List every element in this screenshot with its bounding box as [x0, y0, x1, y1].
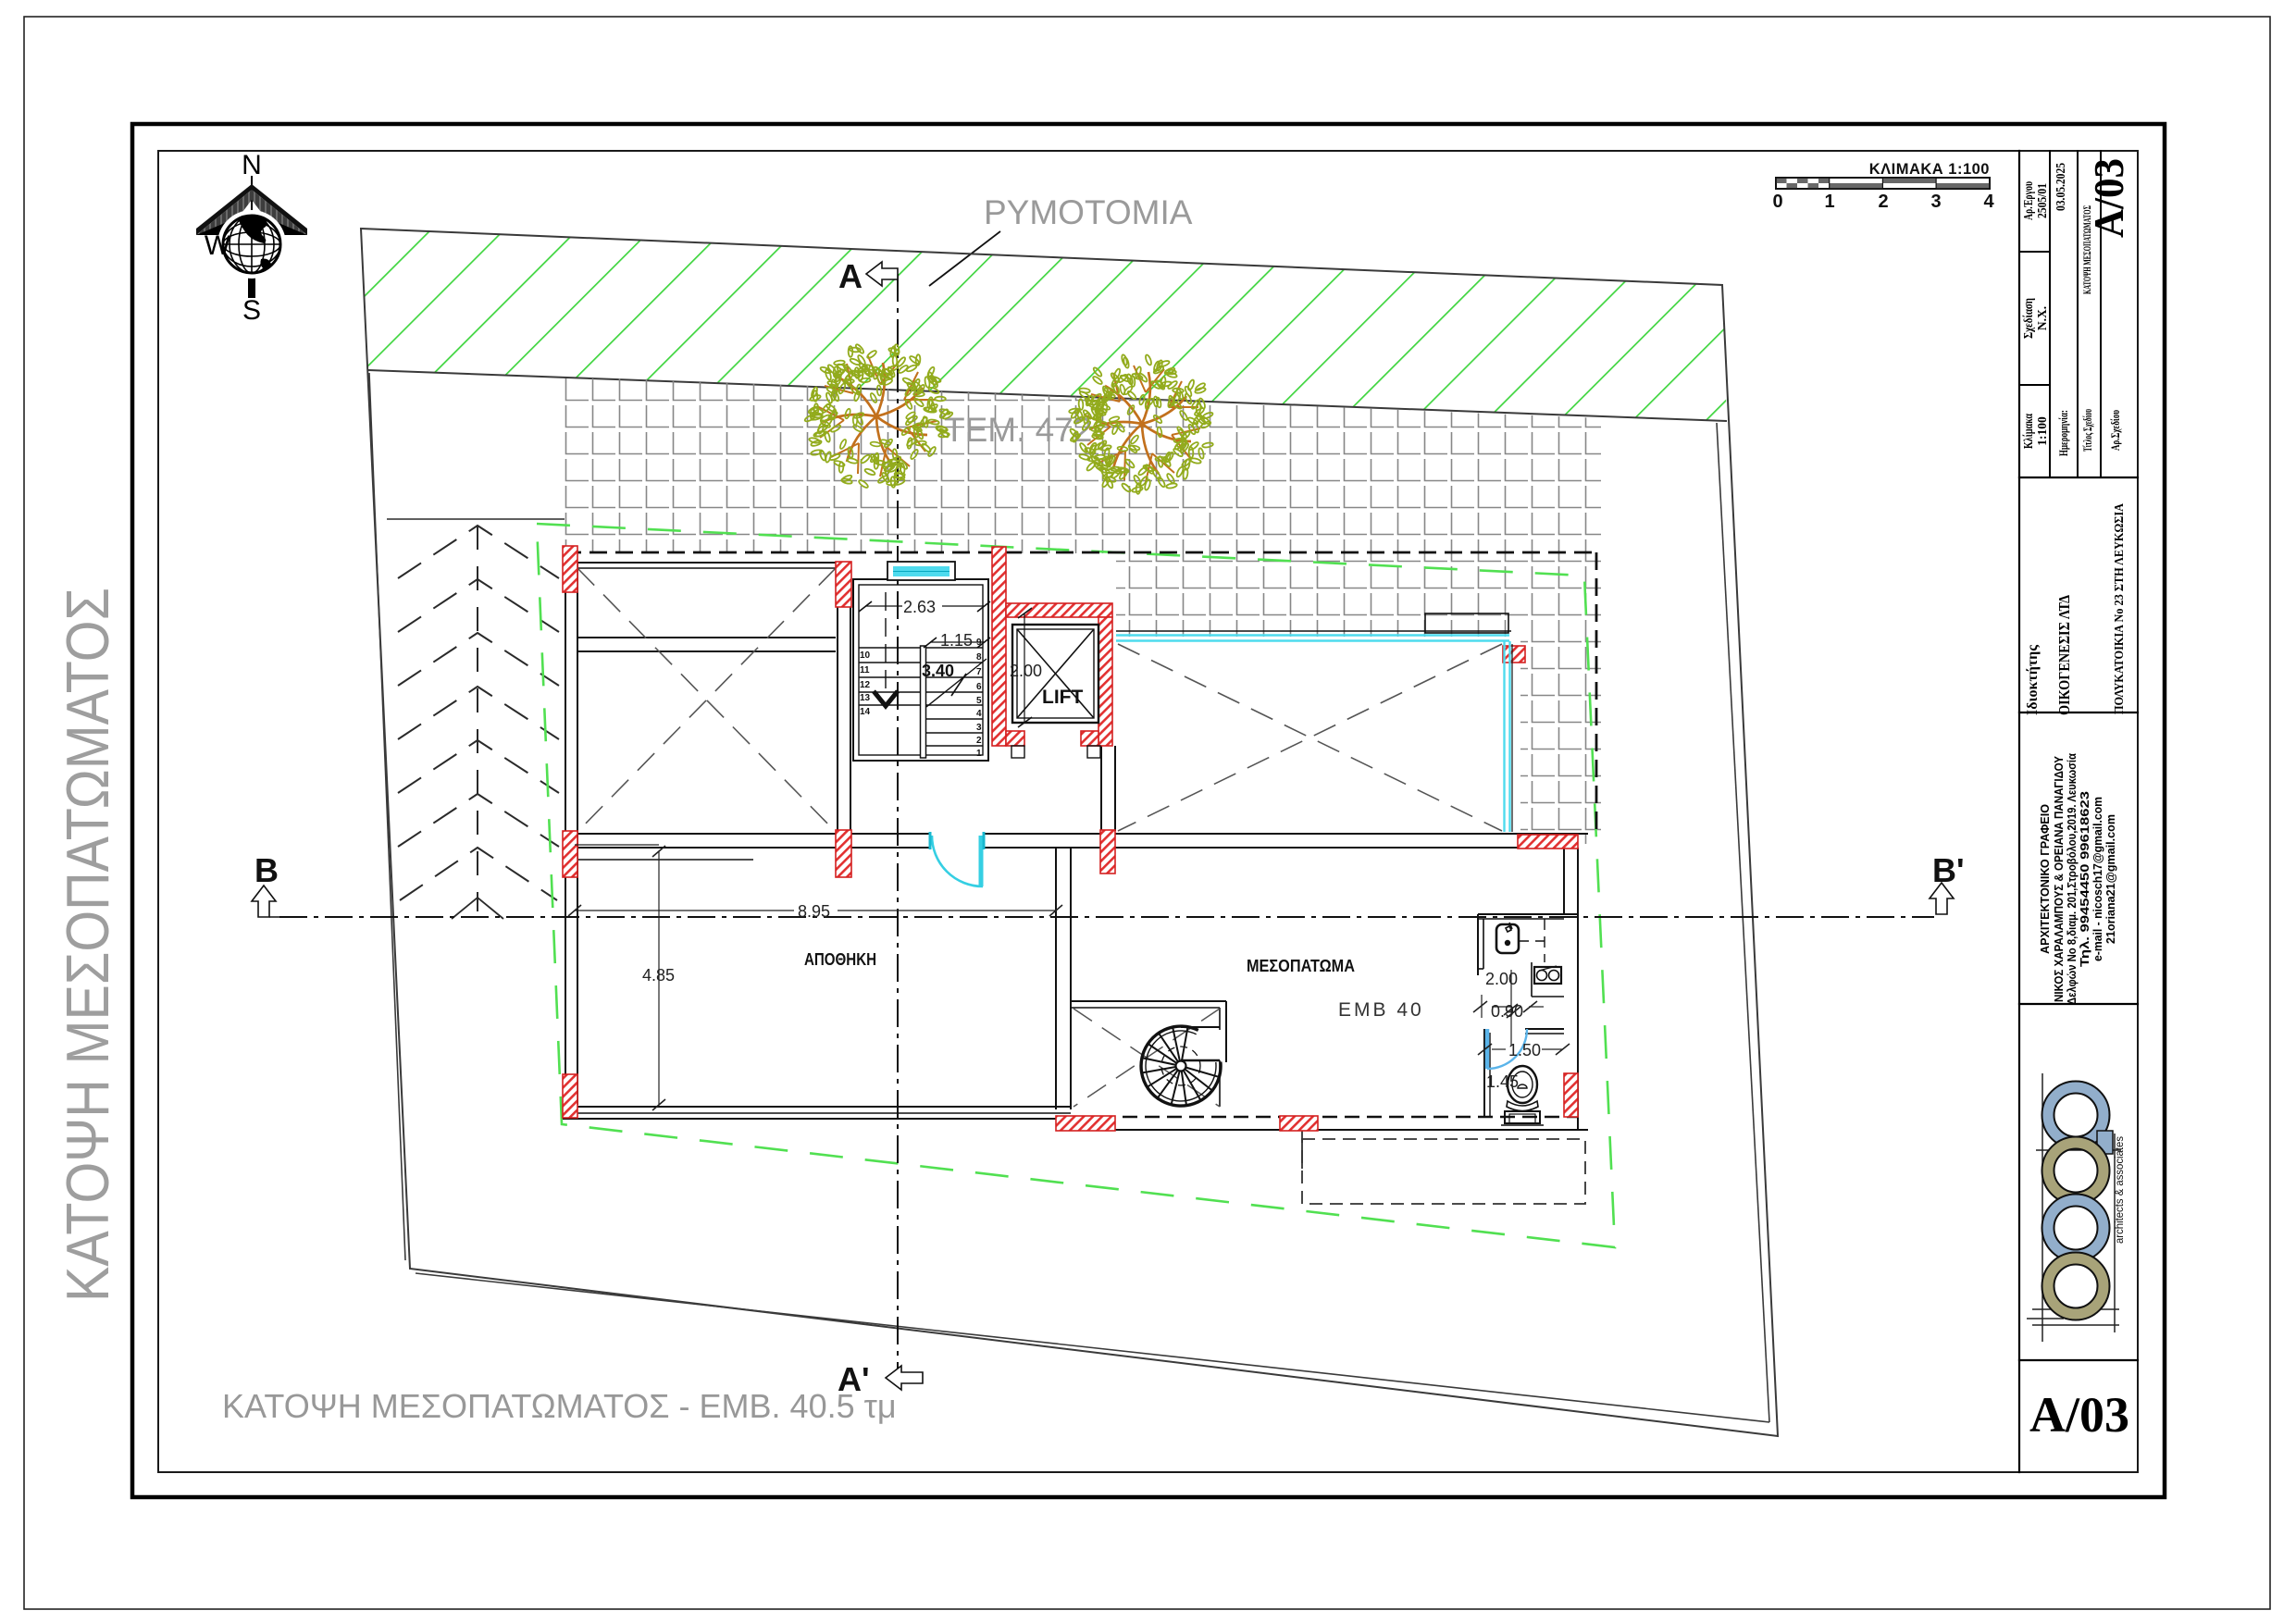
svg-text:W: W — [205, 230, 231, 261]
svg-text:2.00: 2.00 — [1485, 970, 1518, 988]
svg-text:10: 10 — [860, 650, 871, 661]
svg-text:1.45: 1.45 — [1486, 1072, 1519, 1091]
svg-text:ΕΜΒ 40: ΕΜΒ 40 — [1338, 999, 1424, 1021]
svg-text:1.15: 1.15 — [940, 631, 973, 650]
svg-text:ΜΕΣΟΠΑΤΩΜΑ: ΜΕΣΟΠΑΤΩΜΑ — [1247, 957, 1355, 975]
svg-text:1: 1 — [976, 749, 982, 759]
svg-text:12: 12 — [860, 680, 871, 690]
svg-text:3: 3 — [976, 723, 982, 733]
svg-text:A': A' — [838, 1360, 870, 1398]
svg-text:B: B — [254, 851, 279, 889]
svg-text:ΚΑΤΟΨΗ ΜΕΣΟΠΑΤΩΜΑΤΟΣ - ΕΜΒ. 40: ΚΑΤΟΨΗ ΜΕΣΟΠΑΤΩΜΑΤΟΣ - ΕΜΒ. 40.5 τμ — [222, 1387, 897, 1425]
svg-text:4: 4 — [976, 709, 982, 719]
svg-text:03.05.2025: 03.05.2025 — [2054, 163, 2068, 211]
svg-text:architects & associates: architects & associates — [2115, 1136, 2126, 1244]
svg-text:A/03: A/03 — [2085, 158, 2132, 238]
svg-text:N.X.: N.X. — [2035, 306, 2049, 330]
svg-text:2505/01: 2505/01 — [2035, 183, 2049, 218]
svg-text:1: 1 — [1824, 192, 1834, 212]
svg-text:ΡΥΜΟΤΟΜΙΑ: ΡΥΜΟΤΟΜΙΑ — [984, 193, 1193, 231]
svg-text:ΝΙΚΟΣ ΧΑΡΑΛΑΜΠΟΥΣ & ΟΡΕΙΑΝΑ ΠΑ: ΝΙΚΟΣ ΧΑΡΑΛΑΜΠΟΥΣ & ΟΡΕΙΑΝΑ ΠΑΝΑΓΙΔΟΥ — [2053, 755, 2066, 1002]
svg-text:ΑΠΟΘΗΚΗ: ΑΠΟΘΗΚΗ — [804, 950, 876, 969]
svg-text:1:100: 1:100 — [2035, 416, 2049, 446]
svg-text:21oriana21@gmail.com: 21oriana21@gmail.com — [2104, 814, 2117, 944]
svg-text:A/03: A/03 — [2029, 1387, 2129, 1443]
svg-text:9: 9 — [976, 638, 982, 648]
svg-text:Τηλ. 99454450 99618623: Τηλ. 99454450 99618623 — [2079, 791, 2091, 967]
svg-text:7: 7 — [976, 667, 982, 677]
svg-text:A: A — [838, 257, 863, 295]
svg-text:2: 2 — [1878, 192, 1888, 212]
svg-text:B': B' — [1932, 851, 1965, 889]
svg-text:Κλίμακα: Κλίμακα — [2021, 414, 2035, 449]
svg-text:1.50: 1.50 — [1508, 1041, 1541, 1059]
svg-text:6: 6 — [976, 682, 982, 692]
svg-text:LIFT: LIFT — [1042, 687, 1083, 708]
svg-text:Ιδιοκτήτης: Ιδιοκτήτης — [2025, 645, 2041, 715]
svg-text:Αρ.Έργου: Αρ.Έργου — [2021, 181, 2035, 220]
svg-text:11: 11 — [860, 665, 870, 675]
svg-text:13: 13 — [860, 693, 871, 703]
svg-text:ΠΟΛΥΚΑΤΟΙΚΙΑ Νο 23 ΣΤΗ ΛΕΥΚΩΣΙ: ΠΟΛΥΚΑΤΟΙΚΙΑ Νο 23 ΣΤΗ ΛΕΥΚΩΣΙΑ — [2113, 502, 2127, 714]
svg-text:2: 2 — [976, 736, 982, 746]
svg-text:5: 5 — [976, 696, 982, 706]
svg-text:ΟΙΚΟΓΕΝΕΣΙΣ ΛΤΔ: ΟΙΚΟΓΕΝΕΣΙΣ ΛΤΔ — [2055, 595, 2073, 715]
svg-text:Δελφών Νο 8,διαμ. 201,Στροβόλ: Δελφών Νο 8,διαμ. 201,Στροβόλου,2019. Λε… — [2066, 753, 2079, 1005]
svg-text:8.95: 8.95 — [798, 902, 830, 921]
svg-text:2.63: 2.63 — [903, 598, 936, 616]
svg-text:14: 14 — [860, 707, 871, 717]
svg-text:ΚΑΤΟΨΗ ΜΕΣΟΠΑΤΩΜΑΤΟΣ: ΚΑΤΟΨΗ ΜΕΣΟΠΑΤΩΜΑΤΟΣ — [54, 588, 121, 1302]
svg-text:ΑΡΧΙΤΕΚΤΟΝΙΚΟ ΓΡΑΦΕΙΟ: ΑΡΧΙΤΕΚΤΟΝΙΚΟ ΓΡΑΦΕΙΟ — [2039, 804, 2052, 954]
svg-text:4.85: 4.85 — [642, 966, 675, 985]
svg-text:0.90: 0.90 — [1491, 1002, 1523, 1021]
svg-text:N: N — [242, 150, 262, 180]
svg-text:4: 4 — [1983, 192, 1994, 212]
svg-text:0: 0 — [1772, 192, 1782, 212]
svg-text:2.00: 2.00 — [1010, 662, 1042, 680]
svg-text:3.40: 3.40 — [922, 662, 954, 680]
svg-text:Αρ.Σχεδίου: Αρ.Σχεδίου — [2108, 410, 2122, 451]
svg-text:3: 3 — [1930, 192, 1941, 212]
svg-text:S: S — [242, 295, 261, 326]
svg-text:e-mail - nicosch17@gmail.com: e-mail - nicosch17@gmail.com — [2091, 797, 2104, 961]
svg-text:Σχεδίαση: Σχεδίαση — [2021, 298, 2035, 339]
svg-text:8: 8 — [976, 652, 982, 663]
svg-text:ΚΛΙΜΑΚΑ 1:100: ΚΛΙΜΑΚΑ 1:100 — [1869, 161, 1990, 178]
svg-text:Ημερομηνία:: Ημερομηνία: — [2056, 410, 2070, 456]
svg-text:Τίτλος Σχεδίου: Τίτλος Σχεδίου — [2080, 409, 2094, 452]
